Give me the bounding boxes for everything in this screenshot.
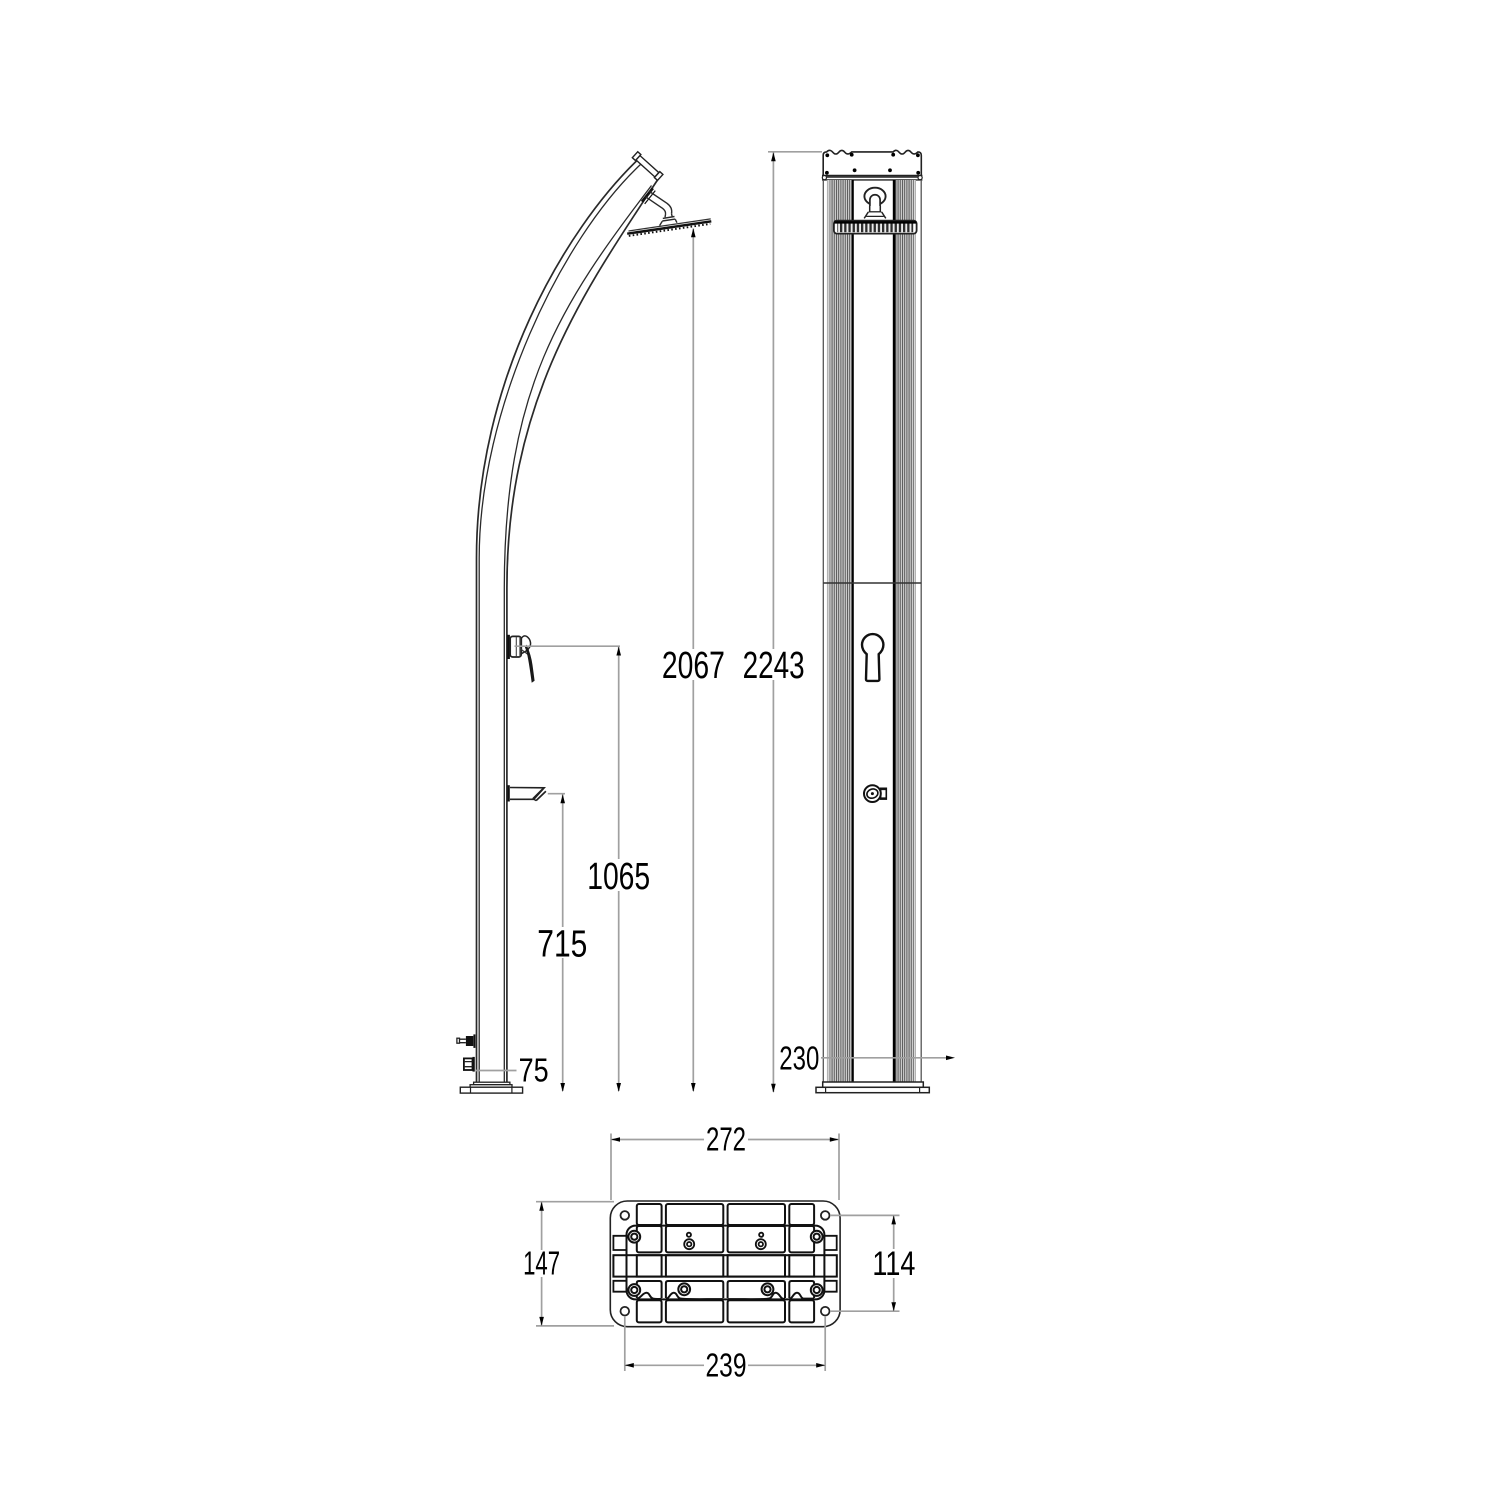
svg-text:239: 239: [706, 1346, 747, 1383]
svg-text:2243: 2243: [743, 645, 805, 687]
svg-text:147: 147: [523, 1245, 560, 1282]
svg-text:230: 230: [779, 1040, 819, 1077]
svg-text:2067: 2067: [662, 645, 725, 687]
svg-text:272: 272: [706, 1121, 746, 1158]
svg-text:715: 715: [537, 924, 587, 966]
svg-text:1065: 1065: [587, 856, 650, 898]
svg-text:75: 75: [519, 1052, 549, 1089]
svg-text:114: 114: [872, 1245, 915, 1283]
